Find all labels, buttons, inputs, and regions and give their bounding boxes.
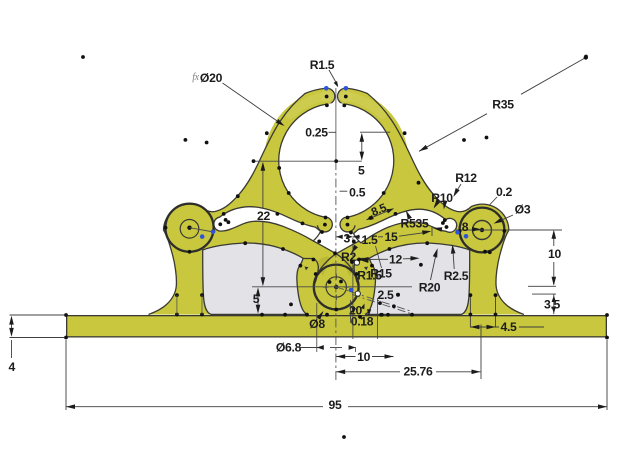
svg-text:10: 10	[357, 350, 370, 364]
svg-text:R535: R535	[401, 216, 429, 230]
svg-text:22: 22	[257, 209, 270, 223]
svg-text:5: 5	[253, 292, 260, 306]
svg-text:Ø20: Ø20	[200, 71, 223, 85]
svg-text:fx: fx	[192, 72, 199, 83]
svg-text:0.18: 0.18	[351, 314, 374, 328]
svg-text:3.5: 3.5	[544, 297, 561, 311]
svg-text:Ø6.8: Ø6.8	[276, 341, 302, 355]
svg-text:2.5: 2.5	[377, 288, 394, 302]
svg-text:Ø8: Ø8	[309, 317, 325, 331]
svg-text:R10: R10	[431, 191, 453, 205]
svg-text:95: 95	[329, 398, 342, 412]
svg-text:10: 10	[548, 247, 561, 261]
svg-text:R12: R12	[455, 171, 477, 185]
svg-text:4: 4	[9, 360, 16, 374]
svg-text:12: 12	[389, 252, 402, 266]
svg-text:8: 8	[462, 220, 469, 234]
svg-text:0.2: 0.2	[496, 185, 513, 199]
svg-text:25.76: 25.76	[404, 365, 434, 379]
svg-text:5: 5	[358, 164, 365, 178]
svg-text:1.5: 1.5	[361, 233, 378, 247]
svg-text:0.25: 0.25	[305, 126, 328, 140]
svg-text:R1.5: R1.5	[310, 58, 335, 72]
svg-text:Ø3: Ø3	[515, 202, 531, 216]
svg-text:15: 15	[385, 230, 398, 244]
svg-text:0.5: 0.5	[349, 185, 366, 199]
svg-text:4.5: 4.5	[500, 320, 517, 334]
svg-text:R20: R20	[419, 280, 441, 294]
svg-text:R15: R15	[370, 267, 392, 281]
svg-text:R35: R35	[492, 98, 514, 112]
svg-text:R2.5: R2.5	[444, 269, 469, 283]
